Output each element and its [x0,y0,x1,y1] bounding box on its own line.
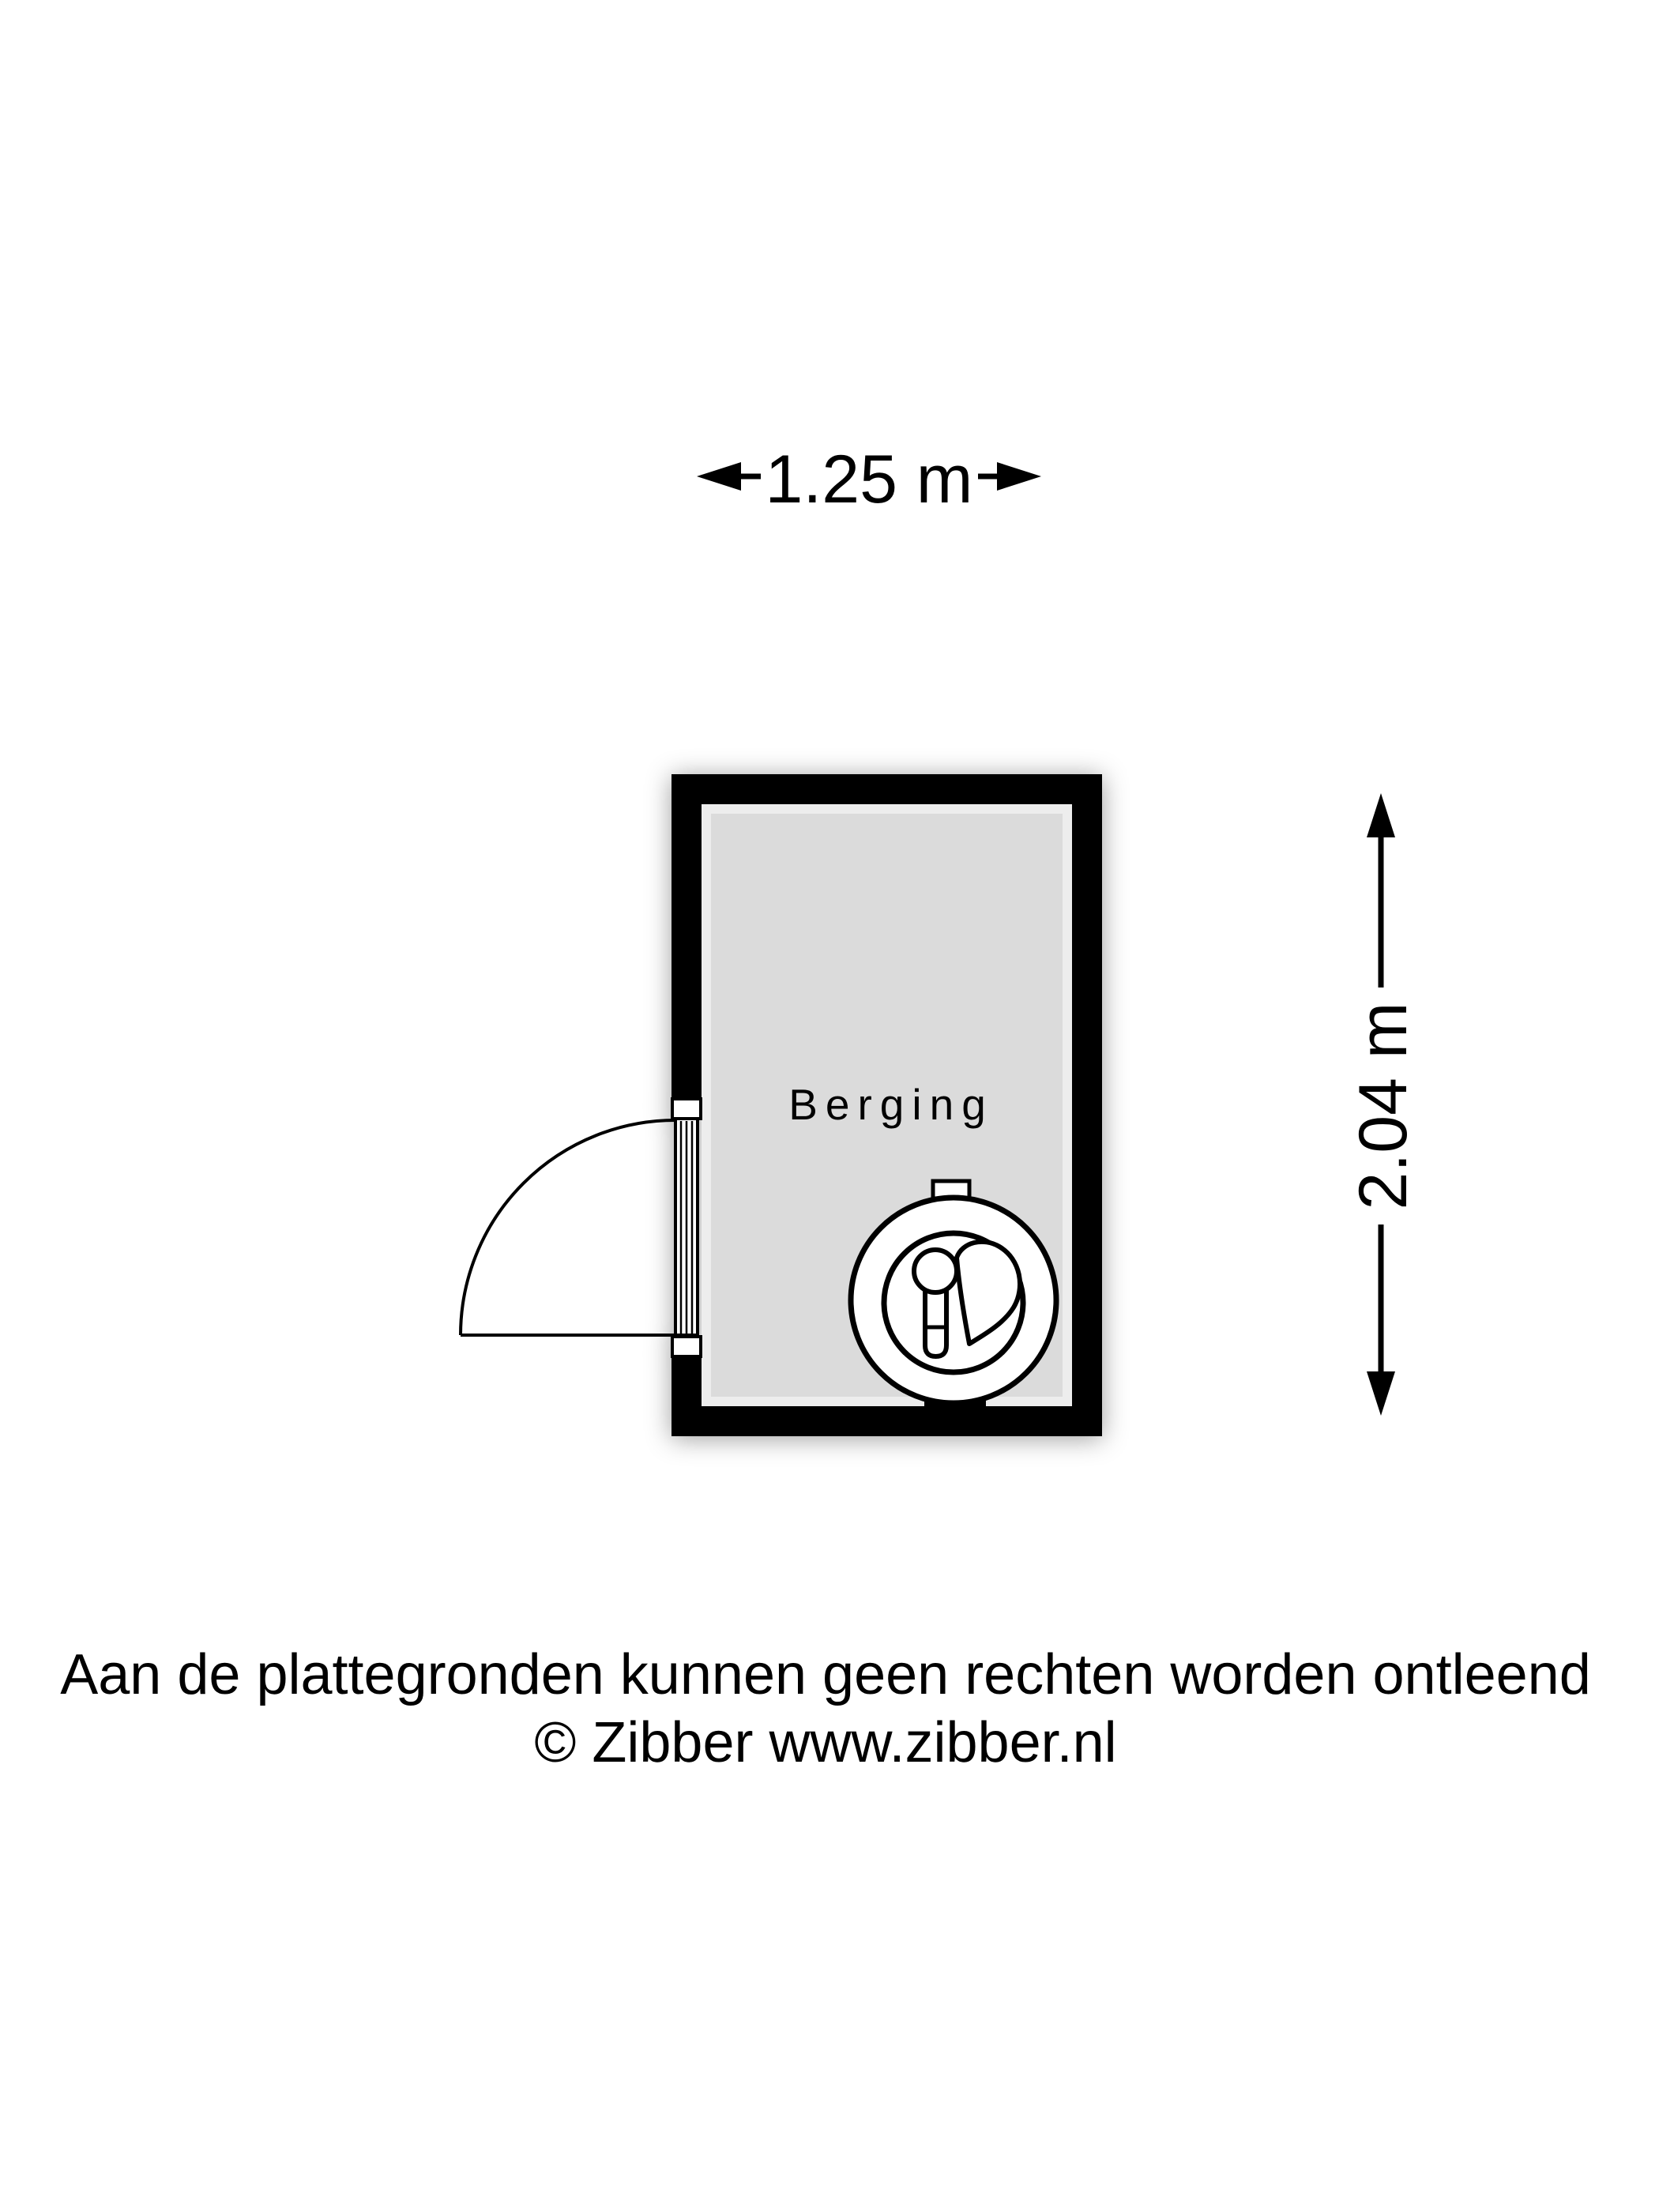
wall-left-upper [671,774,702,1098]
footer: Aan de plattegronden kunnen geen rechten… [60,1643,1591,1774]
door-swing-icon [461,1120,675,1335]
footer-copyright: © Zibber www.zibber.nl [534,1711,1116,1774]
room-label: Berging [788,1080,994,1129]
boiler-keyhole-knob [914,1250,957,1292]
arrow-up-icon [1367,793,1395,837]
wall-left-lower [671,1356,702,1436]
arrow-right-icon [997,462,1041,491]
door-jamb-top [672,1099,701,1119]
wall-right [1072,774,1102,1436]
arrow-down-icon [1367,1371,1395,1416]
wall-top [671,774,1102,804]
width-dimension: 1.25 m [697,442,1041,517]
floorplan-page: 1.25 m 2.04 m [0,0,1659,2212]
footer-disclaimer: Aan de plattegronden kunnen geen rechten… [60,1643,1591,1706]
height-dimension-label: 2.04 m [1345,1003,1421,1210]
height-dimension: 2.04 m [1345,793,1421,1416]
door-swing-arc [461,1120,675,1335]
wall-bottom [671,1406,1102,1436]
width-dimension-label: 1.25 m [766,442,973,517]
door-jamb-bottom [672,1337,701,1356]
floorplan-canvas: 1.25 m 2.04 m [0,0,1659,2212]
door [672,1099,701,1356]
arrow-left-icon [697,462,741,491]
